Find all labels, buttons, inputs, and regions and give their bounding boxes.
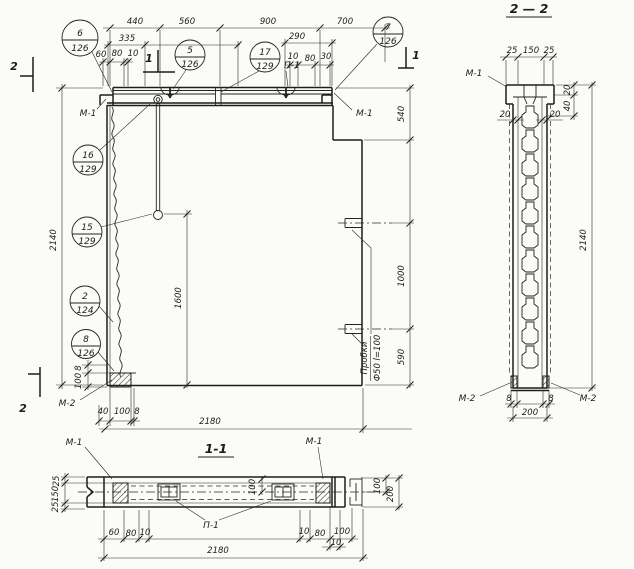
dim-1600: 1600	[174, 287, 184, 309]
s22-dim-8r: 8	[548, 394, 554, 404]
callout-bubbles: 6 126 5 126 17 129 7 126 16	[62, 17, 403, 371]
s11-dim-p200: 200	[386, 486, 396, 502]
dim-sr-80: 80	[305, 54, 316, 64]
s11-dim-25b: 25	[51, 502, 61, 513]
s22-dim-r40: 40	[563, 101, 573, 112]
callout-5: 5 126	[173, 40, 205, 89]
marker-2-top-label: 2	[10, 60, 18, 73]
label-p1-top: П-1	[284, 61, 300, 71]
s11-ext-lines	[61, 477, 403, 561]
s11-dim-80r: 80	[315, 529, 326, 539]
callout-15-sheet: 129	[78, 237, 95, 247]
s11-dim-m100: 100	[248, 479, 258, 495]
dim-590: 590	[397, 349, 407, 365]
s22-dim-20l: 20	[500, 110, 511, 120]
s22-dim-lines	[497, 57, 592, 418]
section-1-1: 1-1	[51, 437, 403, 562]
s11-dim-10b: 10	[331, 538, 342, 548]
s11-embed-left	[113, 483, 128, 503]
dim-blk-100: 100	[114, 407, 130, 417]
callout-2-sheet: 124	[76, 306, 93, 316]
s11-label-m1-right: М-1	[306, 437, 323, 447]
hanger-rod	[154, 95, 163, 219]
callout-7-sheet: 126	[379, 37, 396, 47]
s22-label-m2-right: М-2	[580, 394, 597, 404]
section-2-2-title: 2 — 2	[510, 1, 549, 16]
dim-blk-40: 40	[98, 407, 109, 417]
dim-335: 335	[119, 34, 135, 44]
plugs-note-line1: Пробки	[360, 341, 370, 374]
dim-top-900: 900	[260, 17, 276, 27]
bottom-embed-block	[110, 373, 131, 387]
callout-15-num: 15	[81, 223, 93, 233]
callout-15: 15 129	[72, 214, 152, 247]
panel-outline	[107, 105, 362, 386]
callout-8-sheet: 126	[77, 349, 94, 359]
callout-8-num: 8	[83, 335, 89, 345]
s22-dim-25a: 25	[507, 46, 518, 56]
s11-plate-1	[158, 484, 180, 500]
s11-dim-10r: 10	[299, 527, 310, 537]
dim-290: 290	[289, 32, 305, 42]
s11-label-p1: П-1	[203, 521, 219, 531]
s11-dim-2180: 2180	[207, 546, 229, 556]
dim-1000: 1000	[397, 265, 407, 287]
s22-dim-25b: 25	[544, 46, 555, 56]
s22-label-m1: М-1	[466, 69, 483, 79]
s22-dim-20r: 20	[550, 110, 561, 120]
elevation-labels: М-1 М-1 М-2 П-1	[59, 61, 373, 409]
dim-v100: 100	[74, 373, 84, 389]
callout-5-num: 5	[187, 46, 193, 56]
plugs-note-line2: Ф50 l=100	[373, 335, 383, 382]
s22-dim-2140: 2140	[579, 229, 589, 251]
dim-width-2180: 2180	[199, 417, 221, 427]
callout-17-sheet: 129	[256, 62, 273, 72]
s22-embed-right	[543, 376, 549, 388]
s22-dim-150: 150	[523, 46, 539, 56]
dim-v8: 8	[74, 365, 84, 371]
callout-5-sheet: 126	[181, 60, 198, 70]
dim-sr-30: 30	[321, 52, 332, 62]
callout-7-num: 7	[385, 23, 391, 33]
dim-top-440: 440	[127, 17, 143, 27]
marker-1-right-label: 1	[412, 49, 420, 62]
label-m2-bottom: М-2	[59, 399, 76, 409]
dim-blk-8: 8	[134, 407, 140, 417]
callout-2-num: 2	[82, 292, 88, 302]
s22-dim-r20: 20	[563, 85, 573, 96]
s11-dim-60: 60	[109, 528, 120, 538]
section-2-2: 2 — 2	[459, 1, 597, 422]
sleeve-lower	[338, 325, 392, 334]
panel-drawing-svg: 440 560 900 700 335 290 60 80 10 10 80 3…	[0, 0, 634, 569]
callout-17: 17 129	[221, 42, 280, 92]
marker-1-left-label: 1	[145, 52, 153, 65]
plugs-note: Пробки Ф50 l=100	[352, 230, 383, 381]
label-m1-left: М-1	[80, 109, 97, 119]
marker-2-top	[20, 57, 33, 92]
wavy-edge	[112, 107, 122, 377]
s11-dim-100r: 100	[334, 527, 350, 537]
label-m1-right: М-1	[356, 109, 373, 119]
s11-dim-10l: 10	[140, 528, 151, 538]
marker-2-bottom-label: 2	[19, 402, 27, 415]
s22-dim-8l: 8	[506, 394, 512, 404]
sleeve-upper	[338, 219, 392, 228]
callout-16-num: 16	[82, 151, 94, 161]
s11-dim-150: 150	[51, 486, 61, 502]
lifting-loop-left	[161, 88, 179, 98]
dim-top-700: 700	[337, 17, 353, 27]
marker-2-bottom	[28, 367, 40, 397]
s22-dim-200: 200	[522, 408, 538, 418]
dim-sl-80: 80	[112, 49, 123, 59]
dim-sl-10: 10	[128, 49, 139, 59]
s11-dim-80l: 80	[126, 529, 137, 539]
s22-outline	[506, 85, 554, 391]
callout-6-num: 6	[77, 29, 83, 39]
lifting-loop-right	[277, 88, 295, 98]
section-1-1-title: 1-1	[205, 441, 228, 456]
s11-plate-2	[272, 484, 294, 500]
elevation-view	[100, 88, 392, 388]
dim-height-2140: 2140	[49, 229, 59, 251]
callout-6-sheet: 126	[71, 44, 88, 54]
drawing-sheet: 440 560 900 700 335 290 60 80 10 10 80 3…	[0, 0, 634, 569]
dim-sl-60: 60	[96, 50, 107, 60]
callout-17-num: 17	[259, 48, 271, 58]
s22-label-m2-left: М-2	[459, 394, 476, 404]
s11-label-m1-left: М-1	[66, 438, 83, 448]
dim-540: 540	[397, 106, 407, 122]
s11-dim-p100: 100	[373, 478, 383, 494]
dim-top-560: 560	[179, 17, 195, 27]
callout-16-sheet: 129	[79, 165, 96, 175]
s22-shear-keys	[522, 106, 538, 368]
s22-embed-left	[511, 376, 517, 388]
s11-dim-25a: 25	[52, 476, 62, 487]
s11-embed-right	[316, 483, 330, 503]
